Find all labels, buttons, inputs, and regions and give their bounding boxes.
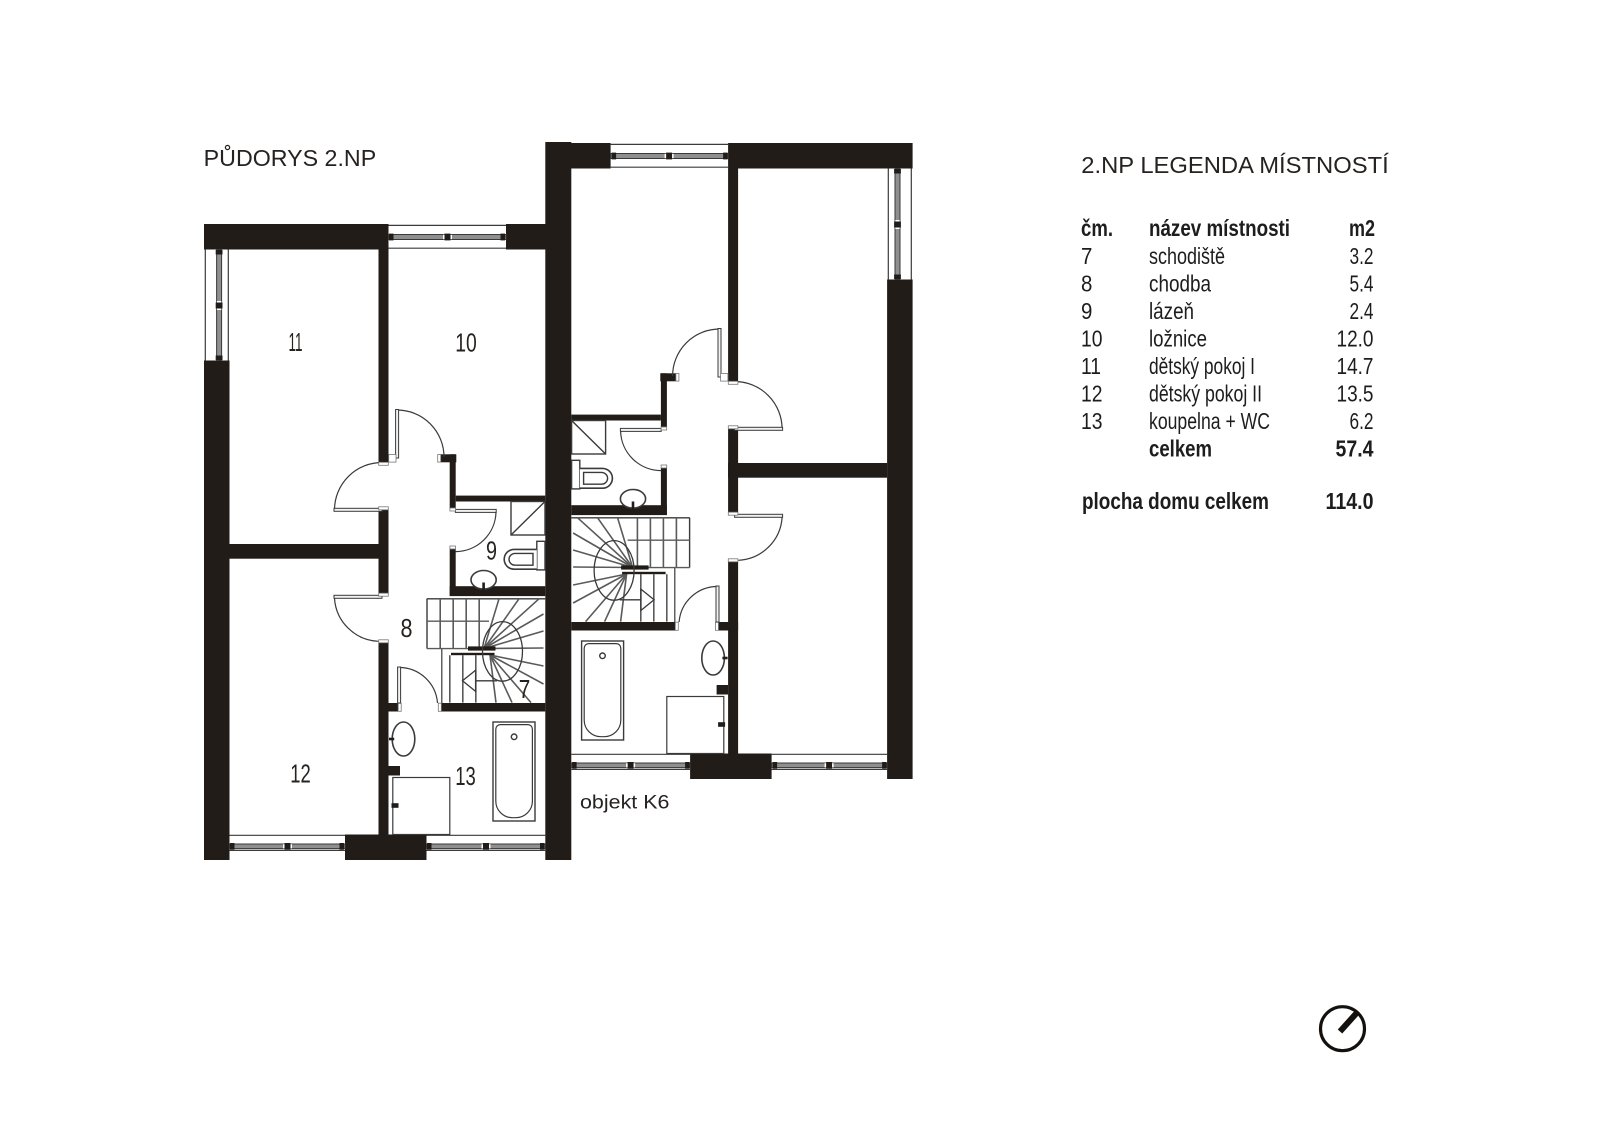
svg-text:57.4: 57.4 bbox=[1336, 436, 1374, 462]
svg-text:ložnice: ložnice bbox=[1149, 326, 1207, 352]
svg-text:chodba: chodba bbox=[1149, 271, 1211, 297]
svg-text:název místnosti: název místnosti bbox=[1149, 215, 1290, 241]
svg-text:3.2: 3.2 bbox=[1350, 243, 1374, 269]
svg-text:schodiště: schodiště bbox=[1149, 243, 1225, 269]
svg-text:plocha domu celkem: plocha domu celkem bbox=[1082, 488, 1269, 514]
svg-text:čm.: čm. bbox=[1081, 215, 1113, 241]
svg-text:2.4: 2.4 bbox=[1350, 298, 1374, 324]
svg-text:13.5: 13.5 bbox=[1337, 381, 1374, 407]
svg-text:7: 7 bbox=[1081, 243, 1092, 269]
svg-text:114.0: 114.0 bbox=[1326, 488, 1374, 514]
svg-text:13: 13 bbox=[1081, 408, 1103, 434]
svg-text:12.0: 12.0 bbox=[1337, 326, 1374, 352]
svg-text:dětský pokoj II: dětský pokoj II bbox=[1149, 381, 1262, 407]
svg-text:14.7: 14.7 bbox=[1337, 353, 1374, 379]
svg-text:10: 10 bbox=[455, 328, 477, 358]
svg-text:13: 13 bbox=[455, 761, 476, 791]
svg-text:koupelna + WC: koupelna + WC bbox=[1149, 408, 1270, 434]
svg-text:11: 11 bbox=[289, 327, 303, 357]
svg-text:11: 11 bbox=[1081, 353, 1101, 379]
svg-text:12: 12 bbox=[1081, 381, 1103, 407]
svg-text:8: 8 bbox=[1081, 271, 1092, 297]
svg-text:7: 7 bbox=[519, 674, 531, 704]
svg-text:2.NP LEGENDA MÍSTNOSTÍ: 2.NP LEGENDA MÍSTNOSTÍ bbox=[1081, 152, 1389, 178]
svg-text:m2: m2 bbox=[1349, 215, 1375, 241]
svg-text:9: 9 bbox=[1081, 298, 1092, 324]
svg-text:PŮDORYS 2.NP: PŮDORYS 2.NP bbox=[204, 143, 377, 171]
svg-text:8: 8 bbox=[401, 613, 413, 643]
svg-text:12: 12 bbox=[290, 759, 311, 789]
svg-text:lázeň: lázeň bbox=[1149, 298, 1194, 324]
svg-text:5.4: 5.4 bbox=[1350, 271, 1374, 297]
svg-text:objekt K6: objekt K6 bbox=[580, 793, 670, 814]
svg-text:dětský pokoj I: dětský pokoj I bbox=[1149, 353, 1255, 379]
svg-text:9: 9 bbox=[486, 536, 497, 566]
svg-text:6.2: 6.2 bbox=[1350, 408, 1374, 434]
svg-text:celkem: celkem bbox=[1149, 436, 1212, 462]
svg-text:10: 10 bbox=[1081, 326, 1103, 352]
